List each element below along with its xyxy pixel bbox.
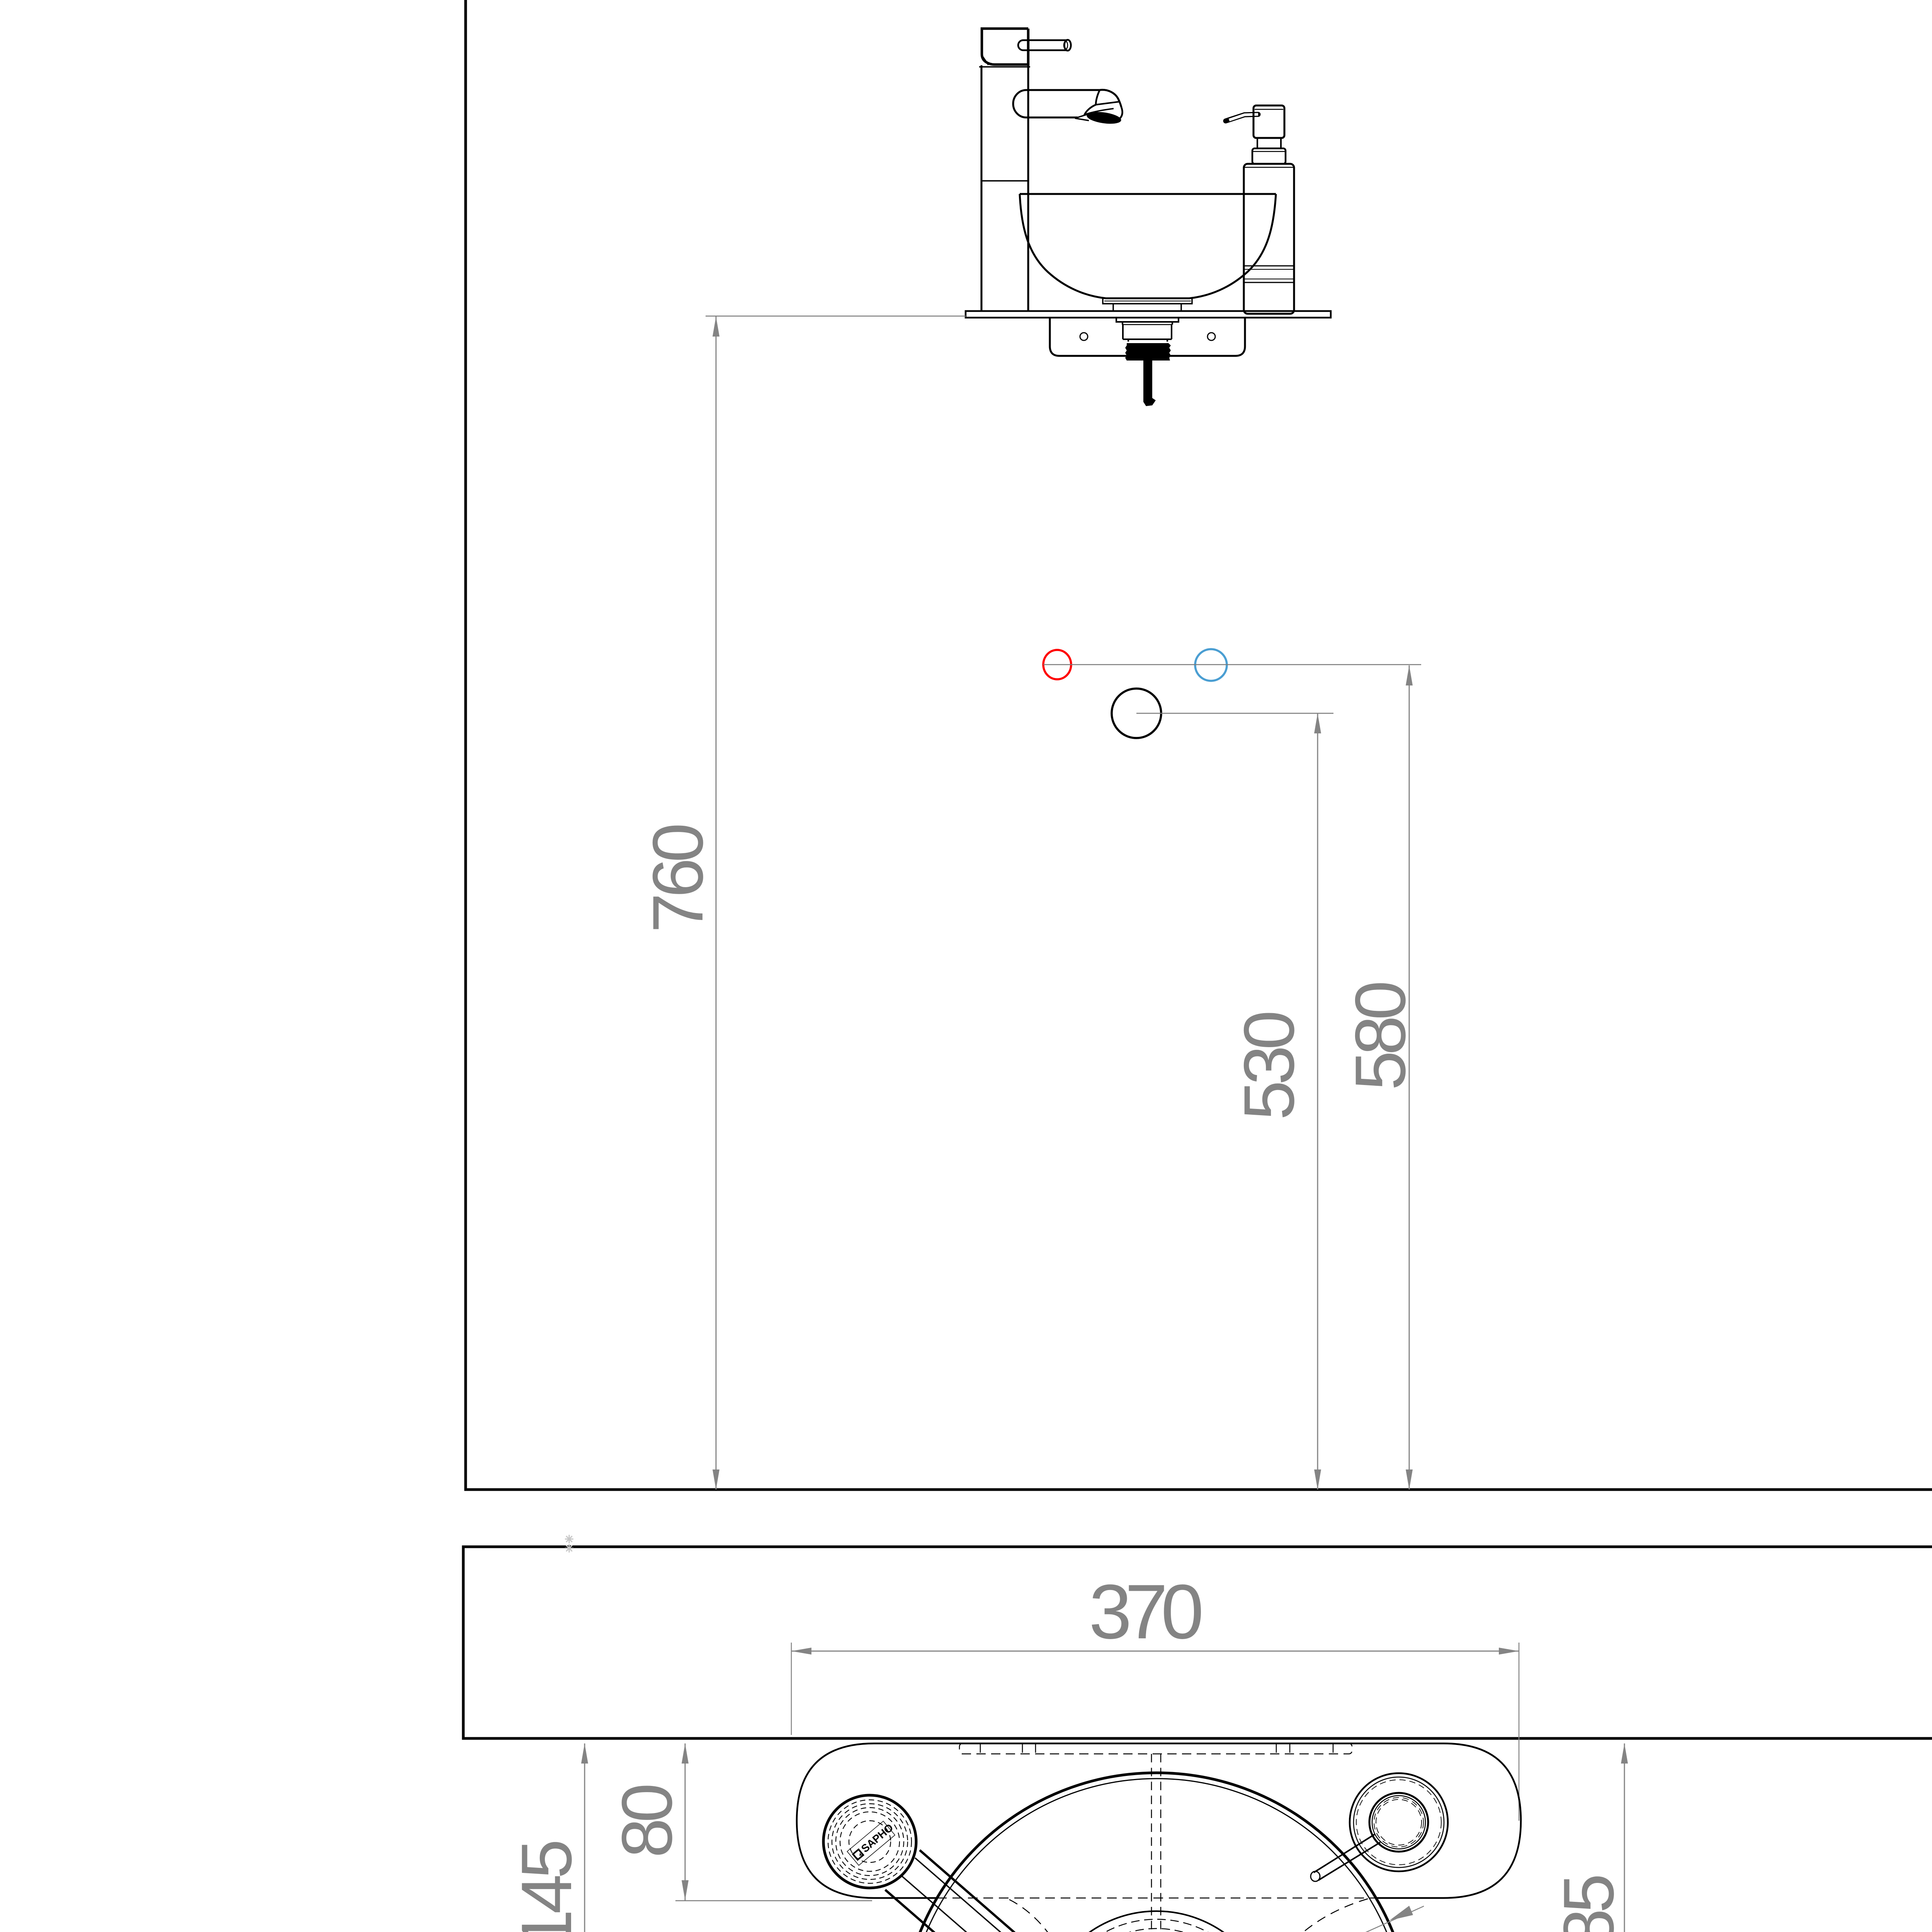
svg-text:80: 80 — [607, 1786, 687, 1858]
svg-text:760: 760 — [638, 825, 718, 933]
svg-text:370: 370 — [1089, 1569, 1201, 1655]
svg-text:580: 580 — [1341, 983, 1420, 1090]
svg-text:185: 185 — [1549, 1876, 1629, 1932]
svg-text:530: 530 — [1230, 1013, 1309, 1120]
svg-text:145: 145 — [507, 1842, 587, 1932]
